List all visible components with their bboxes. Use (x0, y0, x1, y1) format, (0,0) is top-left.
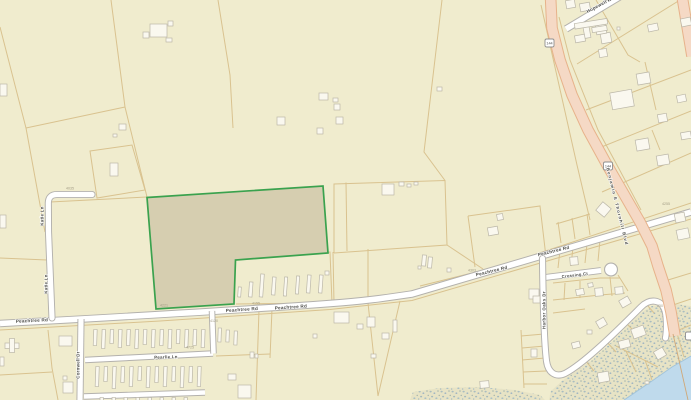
svg-text:144: 144 (546, 42, 552, 46)
svg-text:4155: 4155 (252, 302, 260, 306)
svg-text:4303: 4303 (468, 269, 476, 273)
svg-text:Harbor Oaks Dr: Harbor Oaks Dr (542, 291, 547, 329)
svg-text:Pearlie Ln: Pearlie Ln (154, 354, 178, 360)
svg-text:Katie Ln: Katie Ln (40, 206, 45, 225)
svg-text:250: 250 (657, 304, 663, 308)
svg-text:Katie Ln: Katie Ln (44, 274, 49, 293)
svg-text:4120: 4120 (210, 319, 218, 323)
svg-text:4255: 4255 (662, 202, 670, 206)
svg-text:4725: 4725 (186, 346, 194, 350)
svg-text:4221: 4221 (160, 304, 168, 308)
svg-text:Cornwell Dr: Cornwell Dr (76, 351, 81, 378)
svg-text:4035: 4035 (66, 187, 74, 191)
